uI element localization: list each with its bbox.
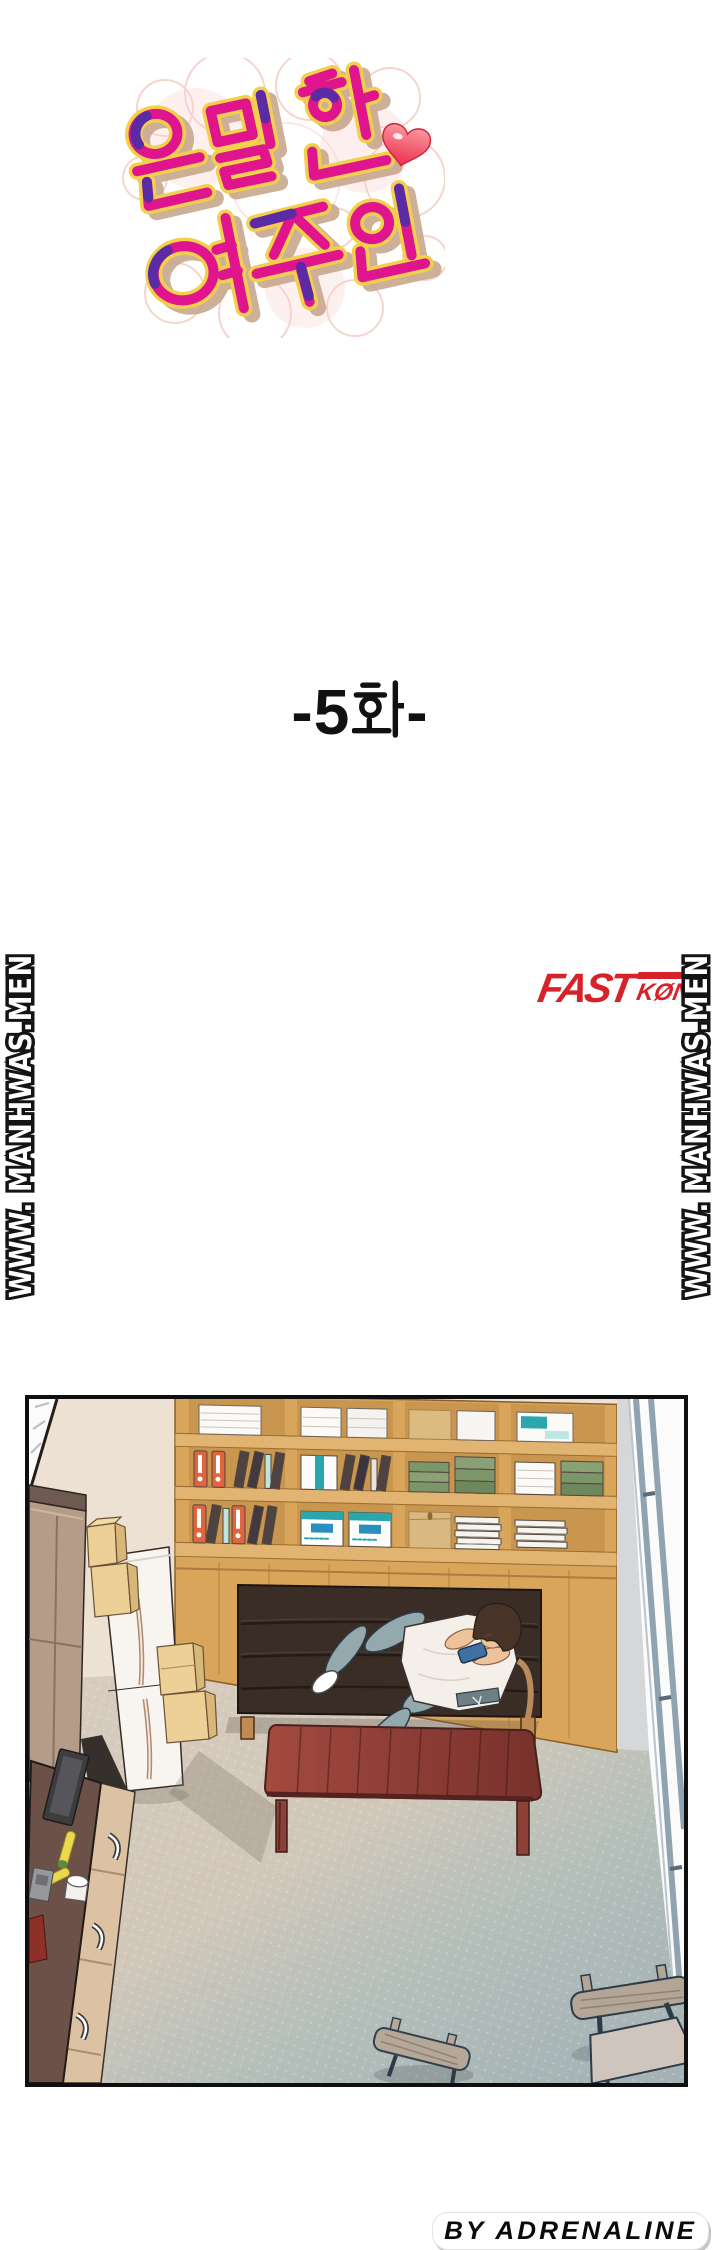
wardrobe: [29, 1485, 86, 1789]
hangul-hwa-glyph: [352, 680, 404, 738]
webtoon-page: 은밀한 여주인 -5화-: [0, 0, 720, 2250]
credit-text: BY ADRENALINE: [444, 2217, 697, 2246]
title-calligraphy: [105, 58, 445, 338]
panel-scene: [29, 1399, 684, 2083]
credit-pill: BY ADRENALINE: [432, 2212, 709, 2250]
watermark-left: WWW. MANHWAS.MEN: [0, 948, 44, 1300]
watermark-left-text: WWW. MANHWAS.MEN: [4, 954, 39, 1298]
episode-suffix: -: [406, 675, 428, 749]
episode-prefix: -5: [291, 675, 350, 749]
comic-panel: [25, 1395, 688, 2087]
fastkon-logo-main: FAST: [535, 968, 635, 1009]
watermark-right-text: WWW. MANHWAS.MEN: [680, 954, 715, 1298]
episode-heading: -5 -: [0, 672, 720, 752]
cup: [65, 1874, 89, 1901]
watermark-right: WWW. MANHWAS.MEN: [676, 948, 720, 1300]
